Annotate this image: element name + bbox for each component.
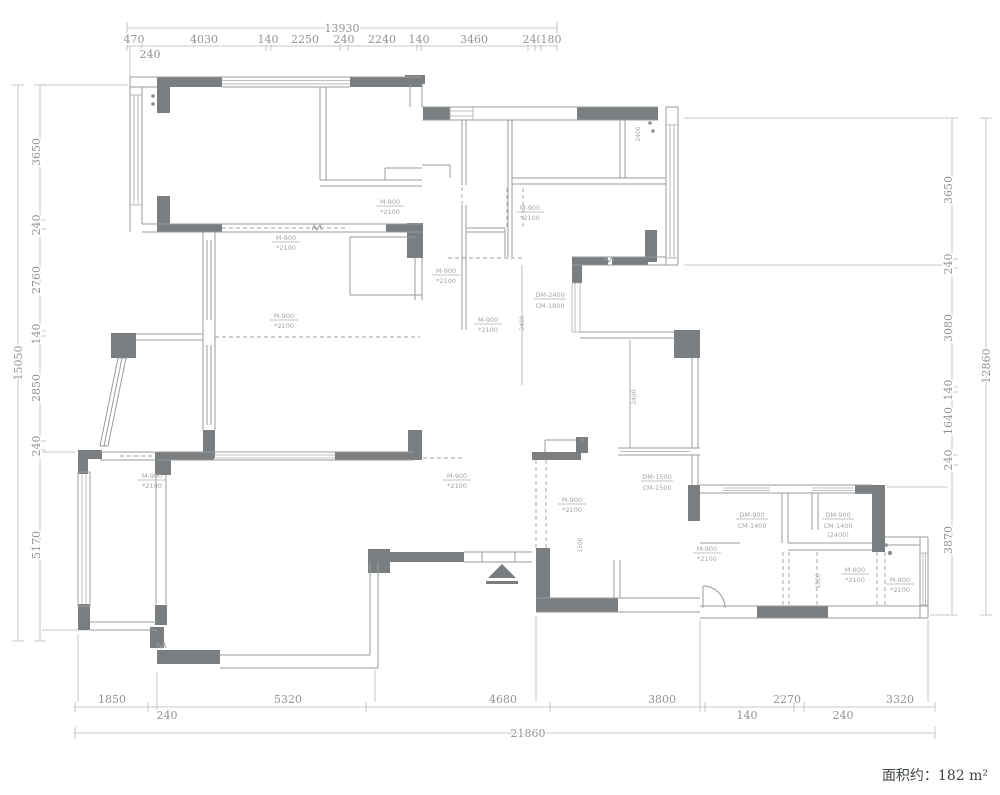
dim-label: 140	[258, 33, 279, 46]
entry-arrow-base	[486, 581, 518, 584]
svg-text:*2100: *2100	[562, 506, 582, 514]
svg-text:*2100: *2100	[436, 277, 456, 285]
door-label: M-900 *2100	[272, 234, 300, 252]
floorplan-svg: 13930 470 4030 140 2250 240 2240 140 346…	[0, 0, 1000, 795]
dim-label: 3870	[942, 526, 955, 554]
dim-label: 140	[737, 709, 758, 722]
dim-label: 240	[157, 709, 178, 722]
door-label: M-900 *2100	[376, 198, 404, 216]
door-label: M-900 *2100	[516, 204, 544, 222]
rotated-note: 2400	[631, 389, 638, 404]
dim-total-bottom: 21860	[511, 727, 546, 740]
dim-label: 2850	[30, 374, 43, 402]
svg-text:M-900: M-900	[478, 316, 498, 324]
dim-label: 2270	[773, 693, 801, 706]
dim-label: 3800	[648, 693, 676, 706]
svg-text:M-800: M-800	[845, 566, 865, 574]
svg-text:*2100: *2100	[890, 586, 910, 594]
svg-text:*2100: *2100	[142, 482, 162, 490]
dim-label: 3460	[460, 33, 488, 46]
dim-label: 3320	[886, 693, 914, 706]
dim-label: 240	[833, 709, 854, 722]
svg-text:CM-1400: CM-1400	[737, 522, 766, 530]
svg-text:*2100: *2100	[520, 214, 540, 222]
window-label: DM-900 CM-1400 (2400)	[822, 511, 854, 539]
dim-total-left: 15050	[12, 346, 25, 381]
dim-label: 140	[30, 324, 43, 345]
door-label: M-900 *2100	[474, 316, 502, 334]
hinge-dot	[648, 121, 652, 125]
dim-label: 2240	[368, 33, 396, 46]
svg-text:M-900: M-900	[520, 204, 540, 212]
door-label: M-800 *2100	[886, 576, 914, 594]
svg-text:M-900: M-900	[142, 472, 162, 480]
dim-label: 470	[124, 33, 145, 46]
door-labels: M-900 *2100 M-900 *2100 M-900 *2100 M-90…	[138, 198, 914, 594]
dim-label: 240	[30, 436, 43, 457]
area-note: 面积约：182 m²	[882, 768, 988, 784]
svg-text:M-900: M-900	[380, 198, 400, 206]
door-label: M-900 *2100	[443, 472, 471, 490]
door-label: M-900 *2100	[270, 312, 298, 330]
rotated-note: 2400	[635, 126, 642, 141]
bottom-dimension-chain: 1850 5320 4680 3800 2270 3320 240 140 24…	[75, 693, 935, 740]
door-label: M-900 *2100	[432, 267, 460, 285]
window-label: DM-1500 CM-1500	[641, 473, 673, 492]
svg-text:CM-1800: CM-1800	[535, 302, 564, 310]
hinge-dot	[651, 129, 655, 133]
extension-lines	[42, 46, 948, 702]
dim-label: 5320	[274, 693, 302, 706]
dashed-lines	[120, 187, 885, 606]
entry-arrow-icon	[488, 564, 516, 578]
dim-label: 140	[409, 33, 430, 46]
svg-text:(2400): (2400)	[827, 531, 849, 539]
wall-outlines	[78, 77, 928, 668]
svg-text:*2100: *2100	[274, 322, 294, 330]
svg-text:CM-1400: CM-1400	[823, 522, 852, 530]
svg-text:DM-1500: DM-1500	[642, 473, 672, 481]
dim-label: 180	[541, 33, 562, 46]
svg-text:*2100: *2100	[478, 326, 498, 334]
svg-text:*2100: *2100	[276, 244, 296, 252]
door-label: M-900 *2100	[558, 496, 586, 514]
svg-text:*2100: *2100	[697, 555, 717, 563]
dim-label: 240	[334, 33, 355, 46]
dim-label: 140	[942, 380, 955, 401]
door-label: M-900 *2100	[138, 472, 166, 490]
floorplan-page: 13930 470 4030 140 2250 240 2240 140 346…	[0, 0, 1000, 795]
rotated-annotations: 2400 2400 2400 1500 1500	[519, 126, 822, 588]
rotated-note: 1500	[815, 573, 822, 588]
dim-label: 3650	[942, 176, 955, 204]
dim-label: 240	[140, 48, 161, 61]
svg-text:DM-900: DM-900	[825, 511, 850, 519]
dim-label: 240	[942, 450, 955, 471]
svg-text:M-900: M-900	[274, 312, 294, 320]
dim-total-right: 12860	[980, 349, 993, 384]
wall-fills	[78, 75, 885, 664]
dim-label: 2250	[291, 33, 319, 46]
svg-text:*2100: *2100	[447, 482, 467, 490]
svg-text:DM-900: DM-900	[739, 511, 764, 519]
hinge-dot	[151, 102, 155, 106]
dim-label: 3080	[942, 314, 955, 342]
window-label: DM-2400 CM-1800	[534, 291, 566, 310]
dim-label: 1850	[98, 693, 126, 706]
hinge-dot	[151, 94, 155, 98]
svg-text:DM-2400: DM-2400	[535, 291, 565, 299]
rotated-note: 2400	[519, 315, 526, 330]
left-dimension-chain: 15050 3650 240 2760 140 2850 240 5170	[12, 85, 46, 641]
svg-text:M-800: M-800	[890, 576, 910, 584]
dim-label: 4680	[489, 693, 517, 706]
dim-label: 1640	[942, 407, 955, 435]
dim-label: 240	[30, 215, 43, 236]
svg-text:CM-1500: CM-1500	[642, 484, 671, 492]
right-dimension-chain: 12860 3650 240 3080 140 1640 240 3870	[942, 118, 993, 615]
svg-text:M-900: M-900	[447, 472, 467, 480]
top-dimension-chain: 13930 470 4030 140 2250 240 2240 140 346…	[124, 22, 562, 61]
door-label: M-800 *2100	[841, 566, 869, 584]
window-label: DM-900 CM-1400	[736, 511, 768, 530]
svg-text:M-900: M-900	[436, 267, 456, 275]
dim-label: 4030	[190, 33, 218, 46]
dim-label: 2760	[30, 266, 43, 294]
dim-label: 240	[942, 254, 955, 275]
dim-label: 5170	[30, 531, 43, 559]
rotated-note: 1500	[577, 537, 584, 552]
dim-label: 3650	[30, 138, 43, 166]
hinge-dot	[581, 438, 585, 442]
window-lines	[82, 81, 928, 606]
svg-text:M-900: M-900	[276, 234, 296, 242]
svg-text:M-900: M-900	[562, 496, 582, 504]
door-label: M-900 *2100	[693, 545, 721, 563]
svg-text:*2100: *2100	[845, 576, 865, 584]
hinge-dot	[884, 543, 888, 547]
svg-text:*2100: *2100	[380, 208, 400, 216]
hinge-dot	[888, 551, 892, 555]
door-swing-arc	[703, 586, 725, 608]
svg-text:M-900: M-900	[697, 545, 717, 553]
